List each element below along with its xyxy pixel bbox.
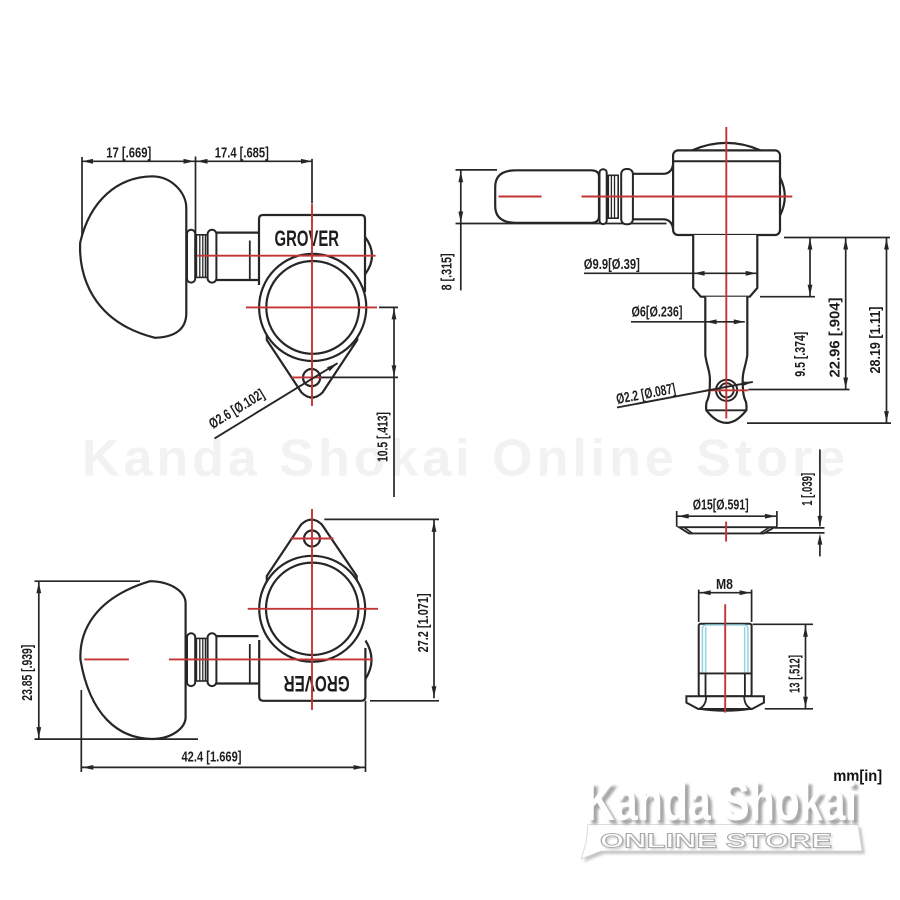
svg-text:Kanda Shokai: Kanda Shokai <box>585 770 857 832</box>
svg-text:ONLINE STORE: ONLINE STORE <box>600 830 832 853</box>
